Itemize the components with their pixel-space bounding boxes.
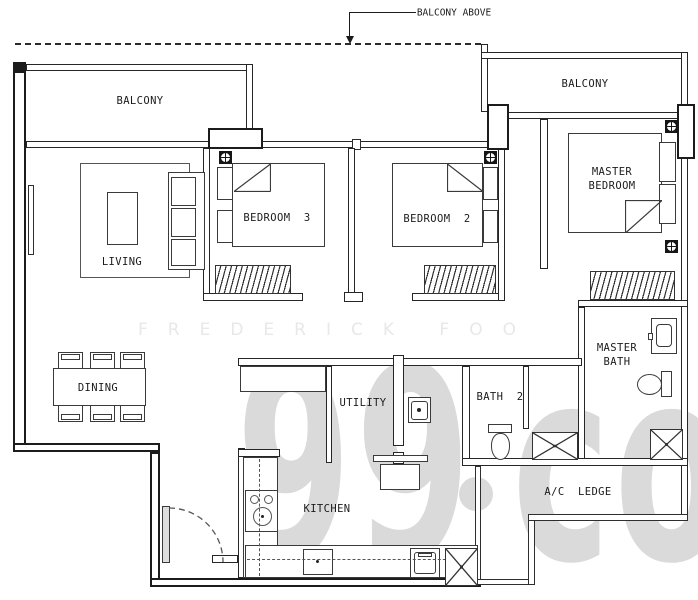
sofa-cushion [171,208,196,237]
exhaust-fan-icon [665,120,678,133]
toilet-bowl [637,374,662,395]
shower-tray-icon [650,429,683,460]
room-label-balcony-right: BALCONY [561,78,608,90]
wall [150,452,160,587]
toilet-tank [488,424,512,433]
room-label-bedroom3: BEDROOM 3 [243,212,310,224]
leader-line [349,12,350,38]
ac-unit-icon [445,548,478,586]
sofa-cushion [171,239,196,266]
bed-fold-icon [447,164,483,192]
wall [13,62,26,452]
wall [540,119,548,269]
wall [481,52,688,59]
exhaust-fan-icon [219,151,232,164]
sink-basin [656,324,672,347]
room-label-utility: UTILITY [339,397,386,409]
bed-fold-icon [234,164,271,192]
wardrobe [215,265,291,294]
nightstand [483,210,498,243]
wall [326,366,332,463]
wall [150,578,481,587]
burner-center [261,515,264,518]
room-label-master-bath: BATH [604,356,631,368]
burner [250,495,259,504]
utility-counter [240,366,326,392]
wall [498,148,505,301]
room-label-master-bedroom: BEDROOM [588,180,635,192]
ledge-wall [528,514,688,521]
exhaust-fan-icon [665,240,678,253]
window-marker [28,185,34,255]
wall [238,449,280,457]
door-swing-arc [166,504,224,564]
toilet-tank [661,371,672,397]
sofa-cushion [171,177,196,206]
wall [13,443,160,452]
wall [462,366,470,466]
wardrobe [590,271,675,300]
wall [503,112,681,119]
leader-line [350,12,416,13]
dining-chair [58,405,83,422]
nightstand [659,142,676,182]
nightstand [483,167,498,200]
dining-chair [90,352,115,369]
balcony-above-note: BALCONY ABOVE [417,8,491,19]
laundry-sink-counter [373,455,428,462]
nightstand [217,210,233,243]
wall [348,148,355,294]
sink-tap [648,333,653,340]
room-label-master-bath: MASTER [597,342,637,354]
wall [238,358,582,366]
room-label-master-bedroom: MASTER [592,166,632,178]
bed-fold-icon [625,200,662,233]
toilet-bowl [491,433,510,460]
nightstand [217,167,233,200]
wall [681,52,688,112]
dishwasher-handle [418,553,432,557]
wardrobe [424,265,496,294]
wall [344,292,363,302]
room-label-dining: DINING [78,382,118,394]
dining-chair [120,405,145,422]
floor-plan: FREDERICK FOO 99 co BALCONY ABOVE [0,0,698,600]
wall [578,307,585,466]
wall [203,293,303,301]
column [487,104,509,150]
wall [412,293,505,301]
coffee-table [107,192,138,245]
wall [578,300,688,307]
shower-tray-icon [532,432,578,460]
room-label-ac-ledge: A/C LEDGE [544,486,611,498]
room-label-bedroom2: BEDROOM 2 [403,213,470,225]
dining-chair [90,405,115,422]
dining-chair [120,352,145,369]
wall [13,62,26,73]
sink-drain [316,560,319,563]
room-label-living: LIVING [102,256,142,268]
dining-chair [58,352,83,369]
laundry-sink [380,464,420,490]
exhaust-fan-icon [484,151,497,164]
kitchen-counter [245,545,478,578]
column [208,128,263,149]
wall [26,64,252,71]
sliding-door [393,355,404,446]
burner [264,495,273,504]
column [677,104,695,159]
ledge-wall [528,514,535,585]
room-label-balcony-left: BALCONY [116,95,163,107]
room-label-kitchen: KITCHEN [303,503,350,515]
room-label-bath2: BATH 2 [476,391,523,403]
balcony-above-outline [15,43,481,45]
washer-knob [417,408,421,412]
wall [523,366,529,429]
ledge-wall [475,579,535,585]
counter-dash [247,559,476,561]
